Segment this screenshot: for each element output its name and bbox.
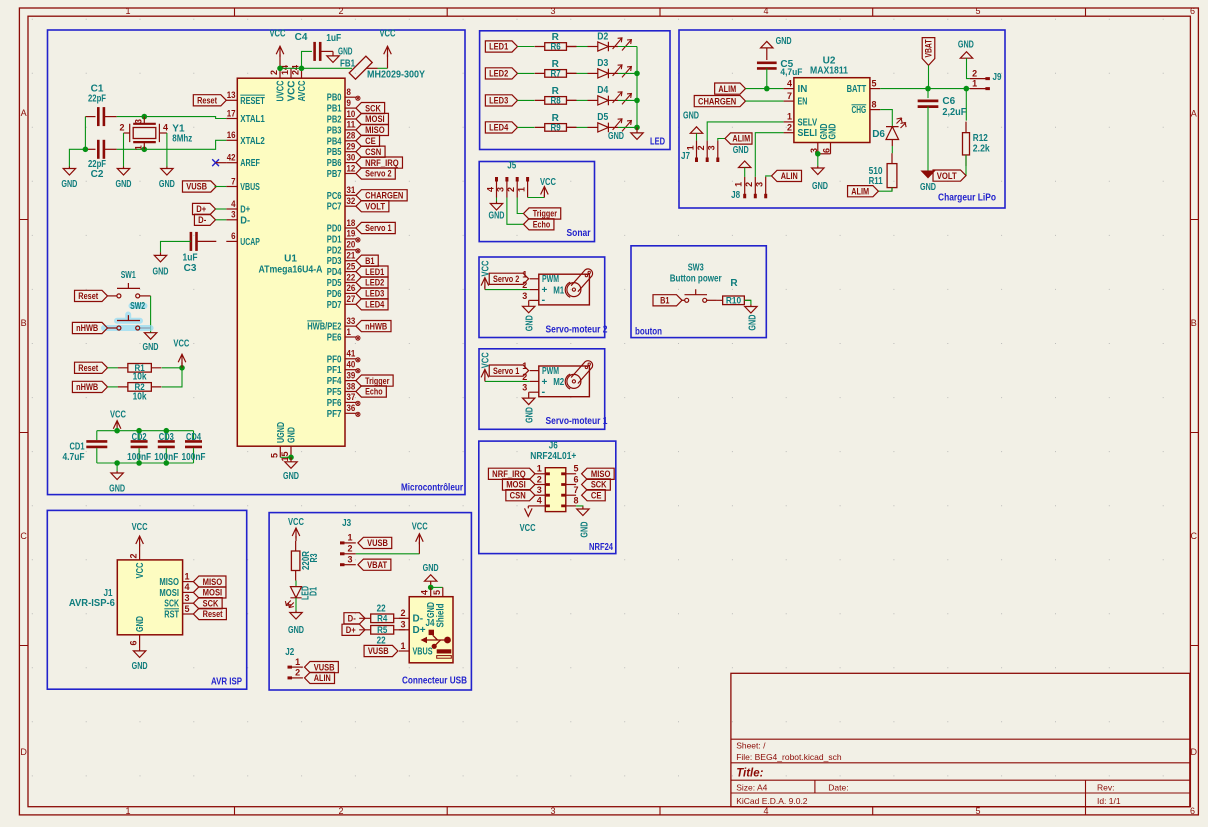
svg-text:3: 3 [185, 593, 190, 603]
svg-text:38: 38 [347, 381, 356, 391]
svg-text:4.7uF: 4.7uF [63, 452, 85, 463]
svg-text:VBUS: VBUS [413, 647, 433, 658]
svg-text:2: 2 [128, 553, 138, 558]
svg-text:VUSB: VUSB [367, 538, 388, 548]
svg-text:PB2: PB2 [327, 115, 342, 126]
svg-text:GND: GND [579, 522, 590, 538]
svg-text:SCK: SCK [365, 103, 381, 113]
svg-text:AVR ISP: AVR ISP [211, 677, 242, 688]
svg-text:RESET: RESET [240, 96, 264, 107]
svg-text:3: 3 [707, 145, 717, 150]
svg-text:AVCC: AVCC [297, 81, 308, 102]
svg-text:CD2: CD2 [132, 432, 147, 443]
svg-text:HWB/PE2: HWB/PE2 [307, 322, 342, 333]
svg-text:Servo 2: Servo 2 [365, 169, 391, 179]
svg-text:10k: 10k [133, 392, 147, 403]
svg-text:3: 3 [550, 806, 555, 816]
svg-text:20: 20 [347, 240, 356, 250]
svg-text:Reset: Reset [203, 609, 223, 619]
svg-text:FB1: FB1 [340, 59, 355, 70]
svg-text:9: 9 [347, 98, 351, 108]
svg-text:LED2: LED2 [489, 69, 508, 79]
svg-text:GND: GND [733, 145, 749, 156]
svg-text:R: R [552, 113, 560, 124]
svg-text:37: 37 [347, 392, 356, 402]
svg-text:GND: GND [153, 266, 169, 277]
svg-text:SCK: SCK [203, 598, 219, 608]
svg-text:D-: D- [240, 215, 250, 226]
svg-text:17: 17 [227, 108, 236, 118]
svg-text:MISO: MISO [365, 125, 385, 135]
svg-text:GND: GND [338, 47, 353, 58]
svg-text:GND: GND [489, 211, 505, 222]
svg-text:LED4: LED4 [365, 300, 384, 310]
svg-text:VCC: VCC [480, 352, 491, 368]
svg-text:LED1: LED1 [489, 42, 508, 52]
svg-text:32: 32 [347, 196, 356, 206]
svg-text:6: 6 [1190, 806, 1195, 816]
svg-text:8: 8 [872, 99, 877, 109]
svg-text:CSN: CSN [510, 490, 526, 500]
svg-text:R6: R6 [551, 42, 561, 53]
svg-text:2: 2 [295, 668, 300, 678]
svg-text:22pF: 22pF [88, 94, 106, 105]
svg-text:7: 7 [787, 91, 792, 101]
svg-text:GND: GND [283, 471, 299, 482]
svg-text:Connecteur USB: Connecteur USB [402, 676, 467, 687]
svg-text:GND: GND [812, 181, 828, 192]
svg-text:ALIM: ALIM [732, 134, 750, 144]
svg-text:24: 24 [291, 65, 301, 75]
svg-text:4: 4 [537, 496, 542, 506]
svg-text:2: 2 [347, 544, 352, 554]
svg-text:MOSI: MOSI [159, 588, 179, 599]
svg-text:1: 1 [295, 657, 300, 667]
svg-text:33: 33 [347, 316, 356, 326]
svg-text:PB0: PB0 [327, 93, 342, 104]
svg-text:MAX1811: MAX1811 [810, 65, 848, 76]
svg-text:4: 4 [420, 590, 430, 595]
svg-text:UCAP: UCAP [240, 237, 260, 248]
svg-text:GND: GND [828, 124, 839, 140]
svg-text:29: 29 [347, 142, 356, 152]
svg-text:3: 3 [537, 485, 542, 495]
svg-text:PF1: PF1 [327, 365, 342, 376]
svg-text:3: 3 [496, 187, 506, 192]
svg-text:25: 25 [347, 261, 356, 271]
svg-text:SW1: SW1 [121, 270, 136, 281]
svg-text:3: 3 [231, 210, 235, 220]
svg-text:10k: 10k [133, 371, 147, 382]
svg-text:PD7: PD7 [327, 300, 342, 311]
svg-text:BATT: BATT [847, 84, 867, 95]
svg-text:Servo-moteur 1: Servo-moteur 1 [546, 416, 608, 427]
svg-text:Sheet: /: Sheet: / [736, 741, 766, 751]
svg-text:1: 1 [347, 533, 352, 543]
svg-text:GND: GND [920, 182, 936, 193]
svg-text:VBUS: VBUS [240, 182, 260, 193]
svg-text:MH2029-300Y: MH2029-300Y [367, 69, 425, 80]
svg-text:MOSI: MOSI [365, 114, 385, 124]
svg-text:VCC: VCC [380, 29, 396, 40]
svg-text:VCC: VCC [540, 177, 556, 188]
svg-text:PD3: PD3 [327, 256, 342, 267]
svg-text:2.2k: 2.2k [973, 144, 990, 155]
svg-text:28: 28 [347, 131, 356, 141]
svg-text:5: 5 [975, 806, 980, 816]
svg-text:M1: M1 [553, 285, 564, 296]
svg-text:22: 22 [377, 635, 386, 646]
svg-text:R12: R12 [973, 133, 988, 144]
svg-text:3: 3 [550, 6, 555, 16]
svg-text:Echo: Echo [365, 387, 383, 397]
svg-text:Servo 1: Servo 1 [365, 223, 391, 233]
svg-text:PE6: PE6 [327, 333, 342, 344]
svg-text:D+: D+ [196, 204, 206, 214]
svg-text:Echo: Echo [533, 220, 551, 230]
svg-text:PB7: PB7 [327, 169, 342, 180]
svg-text:nHWB: nHWB [76, 323, 99, 333]
svg-text:3: 3 [522, 383, 527, 393]
svg-text:LED1: LED1 [365, 267, 384, 277]
svg-text:B1: B1 [365, 256, 374, 266]
svg-text:MISO: MISO [591, 469, 611, 479]
svg-text:VCC: VCC [132, 522, 148, 533]
svg-text:C: C [20, 531, 27, 541]
svg-text:D: D [1191, 747, 1198, 757]
svg-text:MISO: MISO [159, 577, 179, 588]
svg-text:1: 1 [125, 6, 130, 16]
svg-text:Date:: Date: [828, 782, 848, 792]
svg-text:4: 4 [485, 187, 495, 192]
svg-text:GND: GND [958, 40, 974, 51]
svg-text:R: R [552, 59, 560, 70]
svg-text:VBAT: VBAT [367, 560, 387, 570]
svg-text:MOSI: MOSI [203, 588, 223, 598]
svg-text:PF7: PF7 [327, 409, 342, 420]
svg-text:PWM: PWM [542, 366, 559, 377]
svg-text:PF4: PF4 [327, 376, 342, 387]
svg-text:6: 6 [231, 231, 235, 241]
svg-text:VCC: VCC [135, 563, 146, 579]
svg-text:R10: R10 [726, 296, 741, 307]
svg-text:NRF_IRQ: NRF_IRQ [365, 158, 399, 168]
svg-text:7: 7 [231, 176, 235, 186]
svg-text:AREF: AREF [240, 158, 260, 169]
svg-text:GND: GND [132, 661, 148, 672]
svg-text:4: 4 [231, 199, 235, 209]
svg-text:1: 1 [347, 327, 351, 337]
svg-text:VOLT: VOLT [365, 201, 385, 211]
svg-text:M2: M2 [553, 377, 564, 388]
svg-text:31: 31 [347, 185, 356, 195]
svg-text:GND: GND [524, 407, 535, 423]
svg-text:J3: J3 [342, 518, 351, 529]
svg-text:2: 2 [269, 70, 279, 75]
svg-text:VCC: VCC [110, 410, 126, 421]
svg-text:SELI: SELI [798, 128, 818, 139]
svg-text:12: 12 [347, 163, 356, 173]
svg-text:GND: GND [776, 36, 792, 47]
svg-text:J4: J4 [426, 618, 435, 629]
svg-text:CHARGEN: CHARGEN [365, 191, 403, 201]
svg-text:D2: D2 [597, 31, 608, 42]
svg-text:PD5: PD5 [327, 278, 342, 289]
svg-text:J2: J2 [285, 647, 294, 658]
svg-text:U1: U1 [284, 254, 297, 265]
svg-text:VUSB: VUSB [314, 662, 335, 672]
svg-text:LED3: LED3 [365, 289, 384, 299]
svg-text:Servo 2: Servo 2 [493, 274, 519, 284]
svg-text:nHWB: nHWB [365, 321, 388, 331]
svg-text:1: 1 [516, 187, 526, 192]
svg-text:R: R [730, 278, 738, 289]
svg-text:D-: D- [198, 215, 206, 225]
svg-text:LED4: LED4 [489, 123, 508, 133]
svg-text:C3: C3 [184, 263, 197, 274]
svg-text:D4: D4 [597, 85, 608, 96]
svg-text:16: 16 [227, 130, 236, 140]
svg-text:D-: D- [348, 614, 356, 624]
svg-text:VCC: VCC [412, 522, 428, 533]
svg-text:UGND: UGND [276, 422, 287, 443]
svg-text:KiCad E.D.A. 9.0.2: KiCad E.D.A. 9.0.2 [736, 796, 808, 806]
svg-text:2: 2 [338, 6, 343, 16]
svg-text:3: 3 [134, 119, 144, 124]
svg-text:PB5: PB5 [327, 147, 342, 158]
svg-text:UVCC: UVCC [275, 81, 286, 102]
svg-text:J7: J7 [681, 151, 690, 162]
svg-text:PB6: PB6 [327, 158, 342, 169]
svg-text:GND: GND [109, 484, 125, 495]
svg-text:VCC: VCC [286, 81, 297, 102]
svg-text:Button power: Button power [670, 274, 722, 285]
svg-text:D: D [20, 747, 27, 757]
svg-text:NRF24L01+: NRF24L01+ [530, 451, 576, 462]
svg-text:PD4: PD4 [327, 267, 342, 278]
svg-text:30: 30 [347, 152, 356, 162]
svg-text:1: 1 [125, 806, 130, 816]
svg-text:2: 2 [537, 474, 542, 484]
svg-text:3: 3 [347, 555, 352, 565]
svg-text:GND: GND [288, 625, 304, 636]
svg-text:1: 1 [685, 145, 695, 150]
svg-text:4: 4 [185, 582, 190, 592]
svg-text:nHWB: nHWB [76, 382, 99, 392]
svg-text:4: 4 [763, 806, 768, 816]
svg-text:VCC: VCC [173, 339, 189, 350]
svg-text:GND: GND [423, 563, 439, 574]
svg-text:2: 2 [338, 806, 343, 816]
svg-text:Servo 1: Servo 1 [493, 366, 519, 376]
svg-text:J8: J8 [731, 190, 740, 201]
svg-text:4,7uF: 4,7uF [780, 67, 802, 78]
svg-text:Shield: Shield [436, 604, 447, 628]
svg-text:VUSB: VUSB [186, 182, 207, 192]
svg-text:VBAT: VBAT [924, 39, 934, 57]
svg-text:D5: D5 [597, 112, 608, 123]
svg-text:GND: GND [608, 131, 624, 142]
svg-text:6: 6 [574, 474, 579, 484]
svg-text:Reset: Reset [197, 96, 217, 106]
svg-text:GND: GND [159, 179, 175, 190]
svg-text:LED: LED [650, 137, 665, 148]
svg-text:PD1: PD1 [327, 234, 342, 245]
svg-text:41: 41 [347, 349, 356, 359]
svg-text:2,2uF: 2,2uF [942, 107, 966, 118]
svg-text:D-: D- [413, 614, 424, 625]
svg-text:PF5: PF5 [327, 387, 342, 398]
svg-text:5: 5 [432, 590, 442, 595]
svg-text:PB3: PB3 [327, 125, 342, 136]
svg-text:Size: A4: Size: A4 [736, 782, 767, 792]
svg-text:GND: GND [116, 179, 132, 190]
svg-text:CD3: CD3 [159, 432, 174, 443]
svg-text:IN: IN [798, 84, 808, 95]
svg-text:Reset: Reset [78, 291, 98, 301]
svg-text:R: R [552, 86, 560, 97]
svg-text:GND: GND [287, 427, 298, 443]
svg-text:VCC: VCC [520, 523, 536, 534]
svg-text:VUSB: VUSB [368, 646, 389, 656]
svg-text:-: - [542, 386, 546, 398]
svg-text:GND: GND [683, 111, 699, 122]
svg-text:GND: GND [143, 342, 159, 353]
svg-text:VOLT: VOLT [937, 171, 957, 181]
svg-text:CD4: CD4 [186, 432, 201, 443]
svg-text:Rev:: Rev: [1097, 782, 1114, 792]
svg-text:CE: CE [365, 136, 376, 146]
svg-text:NRF24: NRF24 [589, 542, 613, 553]
svg-text:ALIN: ALIN [781, 171, 798, 181]
svg-text:1uF: 1uF [326, 33, 341, 44]
svg-text:C4: C4 [295, 32, 308, 43]
svg-text:2: 2 [744, 182, 754, 187]
svg-text:PF6: PF6 [327, 398, 342, 409]
svg-text:D+: D+ [413, 625, 426, 636]
svg-text:EN: EN [798, 97, 808, 108]
svg-text:SW3: SW3 [688, 263, 704, 274]
svg-text:-: - [542, 294, 546, 306]
svg-text:19: 19 [347, 229, 356, 239]
svg-text:D+: D+ [346, 625, 356, 635]
svg-text:CE: CE [591, 490, 602, 500]
svg-text:GND: GND [135, 616, 146, 632]
svg-text:Sonar: Sonar [567, 228, 591, 239]
svg-text:Chargeur LiPo: Chargeur LiPo [938, 193, 996, 204]
svg-text:PD6: PD6 [327, 289, 342, 300]
svg-text:PD0: PD0 [327, 224, 342, 235]
svg-text:4: 4 [787, 78, 792, 88]
svg-text:18: 18 [347, 218, 356, 228]
svg-text:1: 1 [185, 571, 190, 581]
svg-text:B1: B1 [660, 296, 669, 306]
svg-text:D+: D+ [240, 205, 250, 216]
svg-text:J5: J5 [507, 160, 516, 171]
svg-text:7: 7 [574, 485, 579, 495]
svg-text:8: 8 [347, 87, 351, 97]
svg-text:2: 2 [696, 145, 706, 150]
svg-text:13: 13 [227, 90, 236, 100]
svg-text:CHARGEN: CHARGEN [698, 96, 736, 106]
svg-text:100nF: 100nF [182, 452, 206, 463]
svg-text:PB1: PB1 [327, 104, 342, 115]
svg-text:C6: C6 [942, 96, 955, 107]
svg-text:4: 4 [763, 6, 768, 16]
svg-text:D1: D1 [309, 587, 320, 596]
svg-text:1uF: 1uF [183, 252, 198, 263]
svg-text:PB4: PB4 [327, 136, 342, 147]
svg-text:GND: GND [524, 315, 535, 331]
svg-text:C: C [1191, 531, 1198, 541]
svg-text:SCK: SCK [591, 480, 607, 490]
svg-text:21: 21 [347, 251, 356, 261]
svg-text:A: A [1191, 109, 1197, 119]
svg-text:8: 8 [574, 496, 579, 506]
svg-text:36: 36 [347, 403, 356, 413]
svg-text:VCC: VCC [480, 261, 491, 277]
svg-text:SELV: SELV [798, 117, 818, 128]
svg-text:1: 1 [972, 78, 977, 88]
svg-text:Reset: Reset [78, 363, 98, 373]
svg-text:1: 1 [734, 182, 744, 187]
svg-text:RST: RST [164, 610, 179, 621]
svg-text:MISO: MISO [203, 577, 223, 587]
svg-text:1: 1 [537, 464, 542, 474]
svg-text:22: 22 [347, 272, 356, 282]
svg-text:NRF_IRQ: NRF_IRQ [492, 469, 526, 479]
svg-text:2: 2 [506, 187, 516, 192]
svg-text:D3: D3 [597, 58, 608, 69]
svg-text:GND: GND [748, 315, 759, 331]
svg-text:11: 11 [347, 120, 356, 130]
svg-text:A: A [21, 108, 27, 118]
svg-text:1: 1 [134, 145, 144, 150]
svg-text:SW2: SW2 [130, 301, 145, 312]
svg-text:1: 1 [401, 641, 406, 651]
svg-text:XTAL1: XTAL1 [240, 114, 265, 125]
svg-text:1: 1 [787, 112, 792, 122]
svg-text:5: 5 [975, 6, 980, 16]
svg-text:10: 10 [347, 109, 356, 119]
svg-text:PC6: PC6 [327, 191, 342, 202]
svg-text:C2: C2 [91, 169, 104, 180]
svg-text:VCC: VCC [288, 517, 304, 528]
svg-text:Id: 1/1: Id: 1/1 [1097, 796, 1121, 806]
svg-text:Trigger: Trigger [365, 376, 390, 386]
svg-text:ATmega16U4-A: ATmega16U4-A [259, 265, 323, 276]
svg-text:D6: D6 [872, 129, 885, 140]
svg-text:J9: J9 [993, 72, 1002, 83]
svg-text:LED3: LED3 [489, 96, 508, 106]
svg-text:R7: R7 [551, 69, 561, 80]
svg-text:40: 40 [347, 360, 356, 370]
svg-text:ALIM: ALIM [851, 186, 869, 196]
svg-text:Servo-moteur 2: Servo-moteur 2 [546, 324, 608, 335]
svg-text:5: 5 [872, 78, 877, 88]
svg-text:CHG: CHG [852, 105, 867, 116]
svg-text:XTAL2: XTAL2 [240, 136, 265, 147]
svg-text:LED2: LED2 [365, 278, 384, 288]
svg-text:R9: R9 [551, 123, 561, 134]
svg-text:2: 2 [119, 123, 124, 133]
svg-text:GND: GND [61, 179, 77, 190]
svg-text:5: 5 [574, 464, 579, 474]
svg-text:PWM: PWM [542, 274, 559, 285]
svg-text:CSN: CSN [365, 147, 381, 157]
svg-text:PD2: PD2 [327, 245, 342, 256]
svg-text:42: 42 [227, 153, 236, 163]
